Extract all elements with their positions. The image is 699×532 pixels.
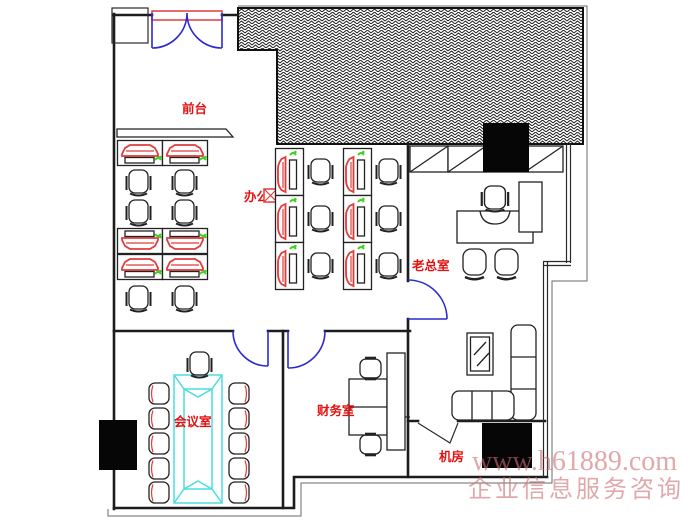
- chair: [309, 253, 333, 279]
- chair: [309, 159, 333, 185]
- desk: [118, 255, 163, 280]
- desk: [163, 255, 208, 280]
- cabinet: [525, 146, 563, 172]
- boss-office: 老总室: [408, 123, 563, 319]
- chair: [360, 358, 381, 379]
- reception-counter: [117, 129, 233, 137]
- chair: [377, 206, 401, 232]
- watermark-caption: 企业信息服务咨询: [468, 476, 684, 503]
- chair: [149, 482, 169, 503]
- desk: [276, 196, 304, 243]
- guest-chair: [495, 249, 518, 279]
- chair: [309, 206, 333, 232]
- chair: [149, 408, 169, 429]
- l-shaped-sofa: [452, 325, 536, 420]
- server-room-label: 机房: [439, 449, 464, 464]
- chair: [149, 458, 169, 479]
- chair: [173, 286, 197, 312]
- reception-area: 前台: [117, 101, 233, 312]
- chair: [127, 286, 151, 312]
- chair: [149, 383, 169, 404]
- chair: [127, 170, 151, 196]
- finance-room-door: [288, 331, 325, 368]
- chair: [360, 434, 381, 455]
- mirror: [467, 333, 493, 375]
- floor-plan-svg: 前台 办公区: [0, 0, 699, 532]
- meeting-room-door: [233, 331, 268, 366]
- column: [483, 123, 529, 172]
- chair: [173, 200, 197, 226]
- chair: [229, 458, 249, 479]
- cabinet: [410, 146, 448, 172]
- desk: [276, 149, 304, 196]
- conference-table: [174, 375, 222, 503]
- chair: [377, 159, 401, 185]
- chair: [229, 482, 249, 503]
- chair: [173, 170, 197, 196]
- meeting-room-label: 会议室: [174, 414, 212, 429]
- desk: [344, 243, 372, 290]
- desk: [118, 141, 163, 166]
- executive-chair: [482, 186, 508, 212]
- column: [99, 420, 137, 470]
- desk: [344, 196, 372, 243]
- chair: [188, 352, 212, 378]
- chair: [377, 253, 401, 279]
- hatched-roof-area: [238, 8, 583, 144]
- finance-cabinet: [387, 353, 405, 450]
- cabinet: [448, 146, 486, 172]
- watermark-url: www.h61889.com: [472, 446, 677, 477]
- finance-room-label: 财务室: [316, 403, 355, 418]
- entrance-double-door: [152, 11, 222, 48]
- desk: [163, 141, 208, 166]
- meeting-room: 会议室: [99, 331, 268, 503]
- desk: [344, 149, 372, 196]
- guest-chair: [463, 249, 486, 279]
- desk: [276, 243, 304, 290]
- chair: [127, 200, 151, 226]
- chair: [229, 433, 249, 454]
- office-area: 办公区: [244, 149, 401, 290]
- side-cabinet: [519, 182, 542, 232]
- watermark: www.h61889.com 企业信息服务咨询: [468, 446, 684, 503]
- finance-room: 财务室: [288, 331, 410, 455]
- lounge-area: [452, 325, 536, 420]
- boss-office-door: [408, 280, 447, 319]
- chair: [229, 408, 249, 429]
- server-room-door: [418, 423, 458, 443]
- boss-office-label: 老总室: [411, 258, 450, 273]
- chair: [229, 383, 249, 404]
- chair: [149, 433, 169, 454]
- reception-label: 前台: [182, 101, 207, 116]
- desk: [163, 229, 208, 254]
- desk: [118, 229, 163, 254]
- floor-plan-page: 前台 办公区: [0, 0, 699, 532]
